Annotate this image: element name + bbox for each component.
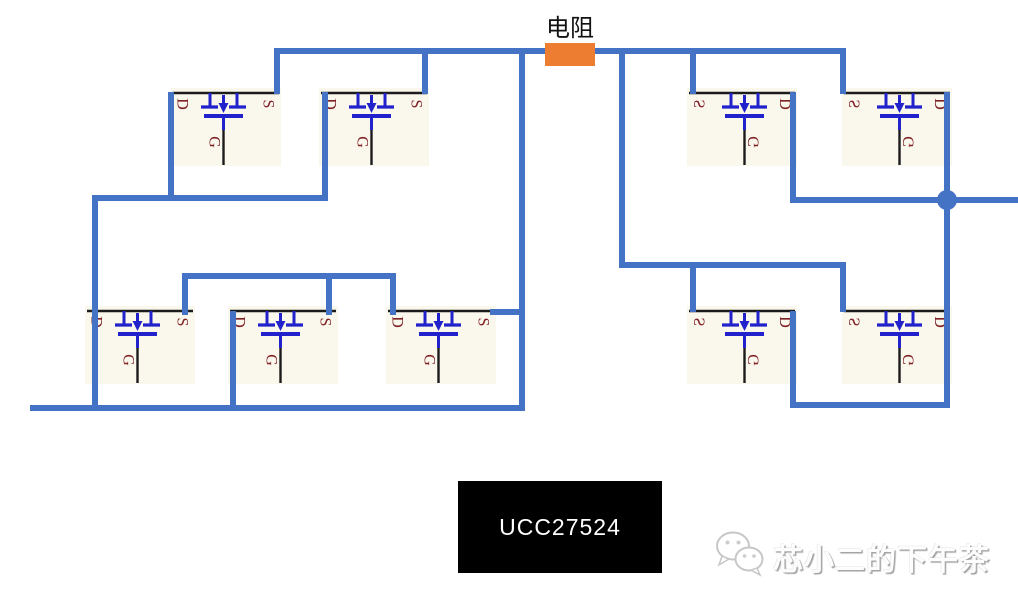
svg-text:G: G	[263, 354, 280, 366]
wire-segment	[168, 92, 174, 201]
mosfet-q6-bottom-left-2: D S G	[228, 306, 338, 384]
wire-segment	[790, 92, 796, 203]
svg-text:S: S	[475, 318, 492, 327]
svg-text:S: S	[847, 100, 864, 109]
svg-text:S: S	[408, 100, 425, 109]
svg-text:G: G	[746, 354, 763, 366]
svg-text:S: S	[260, 100, 277, 109]
svg-text:S: S	[692, 318, 709, 327]
wire-segment	[840, 48, 846, 94]
mosfet-q8-bottom-right-1: D S G	[687, 306, 797, 384]
wire-segment	[490, 309, 525, 315]
wire-segment	[422, 48, 428, 94]
wire-segment	[790, 311, 796, 408]
svg-text:G: G	[354, 136, 371, 148]
wire-segment	[619, 262, 846, 268]
wire-segment	[182, 273, 396, 279]
wire-segment	[390, 273, 396, 315]
mosfet-q9-bottom-right-2: D S G	[842, 306, 952, 384]
svg-text:G: G	[901, 354, 918, 366]
svg-text:G: G	[901, 136, 918, 148]
wechat-bubbles-icon	[713, 529, 767, 584]
svg-text:S: S	[692, 100, 709, 109]
resistor-label: 电阻	[510, 8, 630, 43]
mosfet-q3-top-right-1: D S G	[687, 88, 797, 166]
wire-segment	[840, 262, 846, 312]
driver-chip: UCC27524	[458, 481, 662, 573]
svg-text:G: G	[206, 136, 223, 148]
wire-segment	[274, 48, 280, 94]
wire-segment	[30, 405, 525, 411]
circuit-diagram: D S G D S G D S G D S G D S G	[0, 0, 1018, 598]
svg-text:S: S	[174, 318, 191, 327]
wire-segment	[690, 262, 696, 312]
junction-dot	[937, 190, 957, 210]
wire-segment	[790, 402, 950, 408]
wire-segment	[326, 273, 332, 315]
wire-segment	[690, 48, 696, 94]
svg-text:G: G	[421, 354, 438, 366]
svg-text:G: G	[120, 354, 137, 366]
mosfet-q1-top-left-1: D S G	[171, 88, 281, 166]
wire-segment	[944, 92, 950, 408]
wire-segment	[519, 48, 525, 408]
wire-segment	[182, 273, 188, 315]
svg-text:D: D	[389, 316, 406, 328]
watermark: 芯小二的下午茶	[713, 529, 990, 584]
mosfet-q7-bottom-left-3: D S G	[386, 306, 496, 384]
wire-segment	[230, 311, 236, 411]
mosfet-q4-top-right-2: D S G	[842, 88, 952, 166]
svg-text:S: S	[847, 318, 864, 327]
wire-segment	[619, 48, 625, 265]
mosfet-q2-top-left-2: D S G	[319, 88, 429, 166]
wire-segment	[92, 195, 328, 201]
watermark-text: 芯小二的下午茶	[773, 535, 990, 579]
svg-text:S: S	[317, 318, 334, 327]
wire-segment	[790, 197, 1018, 203]
wire-segment	[322, 92, 328, 201]
svg-text:G: G	[746, 136, 763, 148]
mosfet-q5-bottom-left-1: D S G	[85, 306, 195, 384]
wire-segment	[92, 195, 98, 411]
driver-chip-label: UCC27524	[499, 514, 621, 541]
svg-text:D: D	[174, 98, 191, 110]
resistor-body	[545, 43, 595, 66]
